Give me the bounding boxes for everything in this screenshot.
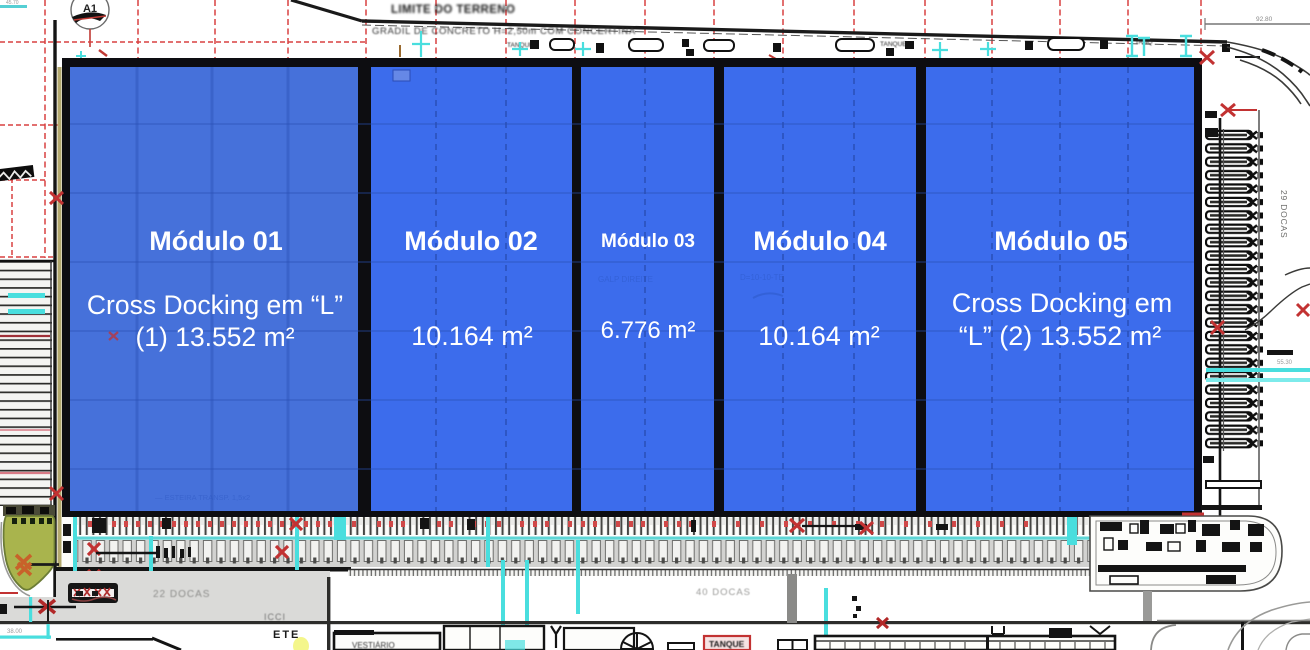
svg-text:6.776 m²: 6.776 m² <box>601 317 696 344</box>
svg-text:10.164 m²: 10.164 m² <box>411 321 533 351</box>
svg-text:38.00: 38.00 <box>7 629 23 635</box>
svg-text:“L” (2) 13.552 m²: “L” (2) 13.552 m² <box>959 321 1162 351</box>
svg-text:55.30: 55.30 <box>1277 360 1293 366</box>
svg-text:TANQUE: TANQUE <box>880 41 907 48</box>
svg-text:45.70: 45.70 <box>6 0 19 6</box>
svg-text:29 DOCAS: 29 DOCAS <box>1279 190 1289 238</box>
svg-text:TANQUE: TANQUE <box>709 639 745 649</box>
svg-text:D=10-10-TE: D=10-10-TE <box>740 273 784 282</box>
svg-text:92.80: 92.80 <box>1256 16 1273 23</box>
svg-text:ICCI: ICCI <box>264 612 286 622</box>
svg-text:Cross Docking em: Cross Docking em <box>952 288 1173 318</box>
svg-text:(1) 13.552 m²: (1) 13.552 m² <box>135 322 294 352</box>
svg-text:GALP DIREITE: GALP DIREITE <box>598 275 653 284</box>
svg-text:40 DOCAS: 40 DOCAS <box>696 587 751 598</box>
svg-text:10.164 m²: 10.164 m² <box>758 321 880 351</box>
svg-text:Módulo 04: Módulo 04 <box>753 226 887 256</box>
svg-text:LIMITE DO TERRENO: LIMITE DO TERRENO <box>391 4 515 16</box>
svg-text:22 DOCAS: 22 DOCAS <box>153 589 210 600</box>
svg-text:Módulo 03: Módulo 03 <box>601 231 695 252</box>
svg-text:Módulo 02: Módulo 02 <box>404 226 538 256</box>
svg-text:Módulo 01: Módulo 01 <box>149 226 283 256</box>
svg-text:Cross Docking em “L”: Cross Docking em “L” <box>87 290 343 320</box>
svg-text:GRADIL DE CONCRETO H=2,50m COM: GRADIL DE CONCRETO H=2,50m COM CONCERTIN… <box>372 26 636 37</box>
svg-text:VESTIÁRIO: VESTIÁRIO <box>352 641 395 650</box>
svg-text:Módulo 05: Módulo 05 <box>994 226 1128 256</box>
svg-text:— ESTEIRA TRANSP. 1,5x2: — ESTEIRA TRANSP. 1,5x2 <box>155 493 250 502</box>
